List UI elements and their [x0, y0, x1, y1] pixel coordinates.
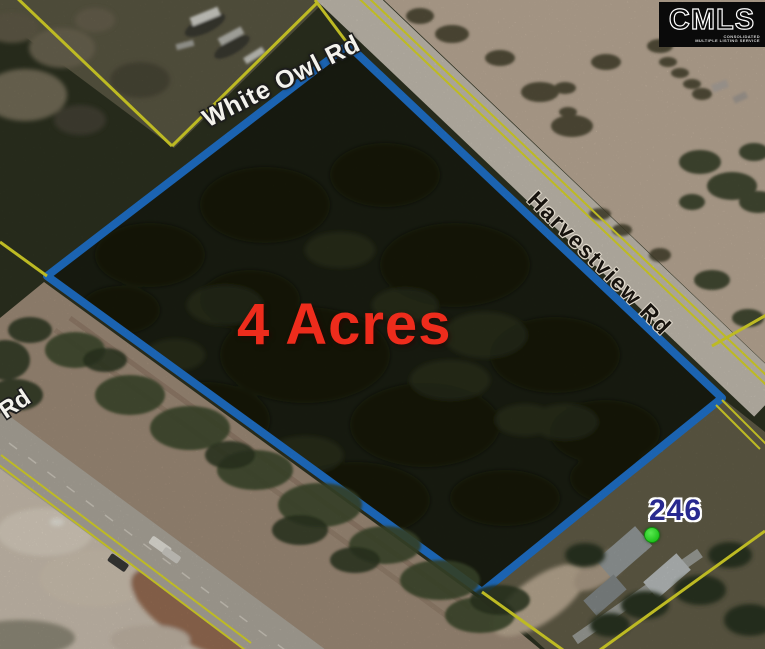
cmls-logo-subtitle-line2: MULTIPLE LISTING SERVICE	[659, 39, 765, 44]
aerial-listing-map: White Owl Rd Harvestview Rd Rd 4 Acres 2…	[0, 0, 765, 649]
parcel-marker-dot	[644, 527, 660, 543]
cmls-logo-title: CMLS	[669, 6, 755, 35]
aerial-basemap	[0, 0, 765, 649]
cmls-logo: CMLS CONSOLIDATED MULTIPLE LISTING SERVI…	[659, 2, 765, 47]
grain-overlay	[0, 0, 765, 649]
